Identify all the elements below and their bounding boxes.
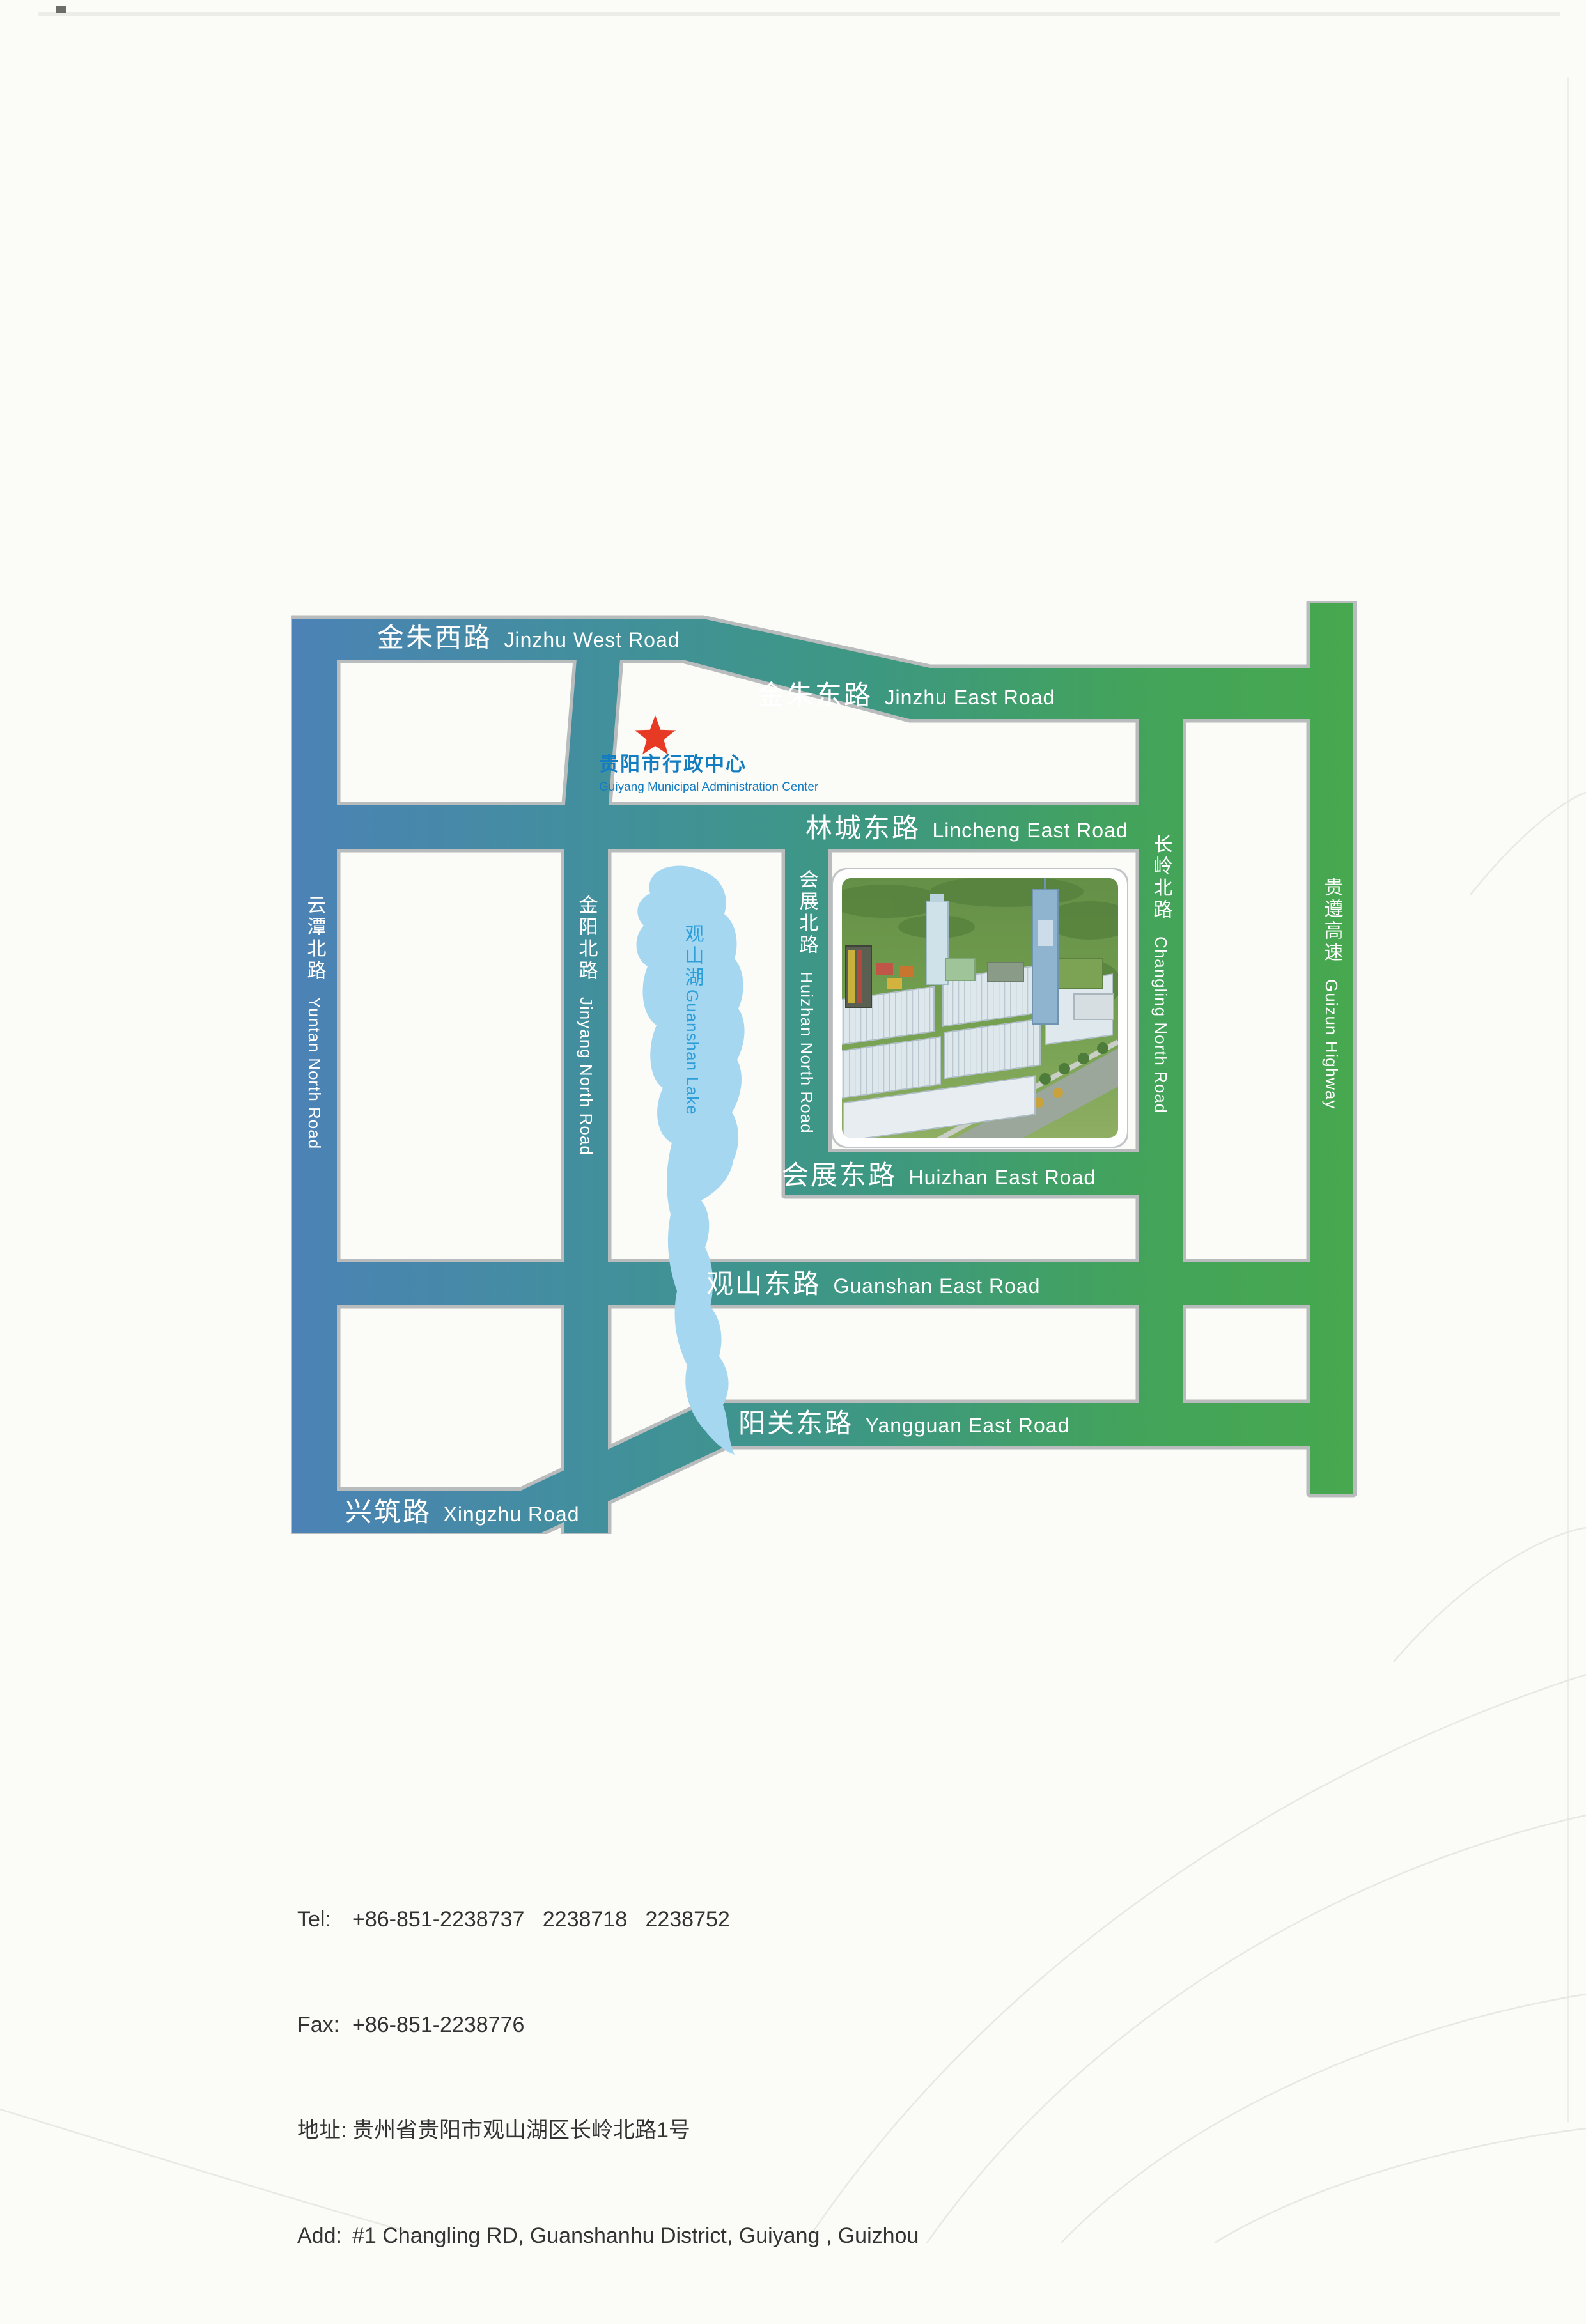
- contact-tel-label: Tel:: [297, 1902, 352, 1937]
- road-label-changling-north-en: Changling North Road: [1151, 936, 1170, 1113]
- road-label-lincheng-east-en: Lincheng East Road: [932, 819, 1128, 842]
- contact-block: Tel:+86-851-2238737 2238718 2238752 Fax:…: [297, 1832, 919, 2324]
- road-label-jinzhu-west-zh: 金朱西路: [377, 623, 492, 653]
- red-star-icon: [635, 715, 676, 755]
- lake-label-en: Guanshan Lake: [683, 989, 702, 1115]
- road-network: [292, 603, 1353, 1533]
- contact-address-en: Add:#1 Changling RD, Guanshanhu District…: [297, 2219, 919, 2254]
- road-label-huizhan-north-en: Huizhan North Road: [797, 972, 816, 1134]
- road-label-jinzhu-east-zh: 金朱东路: [758, 680, 873, 710]
- road-label-xingzhu-zh: 兴筑路: [345, 1497, 431, 1527]
- road-label-huizhan-east-en: Huizhan East Road: [908, 1166, 1096, 1189]
- lake-label-zh: 观山湖: [682, 924, 704, 989]
- scanned-flyer-page: 观山湖 Guanshan Lake: [0, 0, 1586, 2243]
- road-label-huizhan-north-zh: 会展北路: [797, 869, 819, 956]
- contact-fax-label: Fax:: [297, 2008, 352, 2043]
- scan-speck: [56, 6, 66, 13]
- road-label-jinyang-north-en: Jinyang North Road: [577, 997, 596, 1156]
- contact-address-zh: 地址:贵州省贵阳市观山湖区长岭北路1号: [297, 2113, 919, 2148]
- landmark-marker: 贵阳市行政中心 Guiyang Municipal Administration…: [599, 715, 819, 794]
- contact-address-en-label: Add:: [297, 2219, 352, 2254]
- contact-fax-value: +86-851-2238776: [352, 2013, 524, 2037]
- road-label-xingzhu-en: Xingzhu Road: [443, 1503, 579, 1526]
- location-map: 观山湖 Guanshan Lake: [291, 601, 1365, 1534]
- road-label-jinzhu-west-en: Jinzhu West Road: [504, 628, 680, 651]
- road-label-guanshan-east-en: Guanshan East Road: [833, 1274, 1040, 1298]
- road-label-yuntan-north-zh: 云潭北路: [304, 895, 326, 982]
- road-label-changling-north-zh: 长岭北路: [1151, 834, 1172, 921]
- road-label-guanshan-east-zh: 观山东路: [706, 1269, 821, 1299]
- road-label-yangguan-east-zh: 阳关东路: [738, 1408, 853, 1438]
- scan-streak-top: [38, 12, 1560, 16]
- aerial-photo: [828, 869, 1135, 1157]
- contact-tel-value: +86-851-2238737 2238718 2238752: [352, 1907, 730, 1932]
- road-label-lincheng-east-zh: 林城东路: [805, 813, 921, 843]
- road-label-jinyang-north-zh: 金阳北路: [576, 895, 598, 982]
- scan-edge-right: [1567, 77, 1569, 2122]
- contact-address-en-value: #1 Changling RD, Guanshanhu District, Gu…: [352, 2224, 919, 2248]
- road-label-yuntan-north-en: Yuntan North Road: [305, 997, 324, 1149]
- road-label-guizun-highway-en: Guizun Highway: [1322, 979, 1341, 1109]
- contact-address-zh-value: 贵州省贵阳市观山湖区长岭北路1号: [352, 2118, 690, 2142]
- photo-tower-right: [1032, 874, 1058, 1024]
- road-label-huizhan-east-zh: 会展东路: [782, 1160, 897, 1190]
- contact-fax: Fax:+86-851-2238776: [297, 2008, 919, 2043]
- road-label-jinzhu-east-en: Jinzhu East Road: [884, 686, 1055, 709]
- contact-tel: Tel:+86-851-2238737 2238718 2238752: [297, 1902, 919, 1937]
- landmark-label-en: Guiyang Municipal Administration Center: [599, 780, 819, 794]
- road-label-guizun-highway-zh: 贵遵高速: [1321, 877, 1343, 964]
- landmark-label-zh: 贵阳市行政中心: [599, 753, 747, 775]
- contact-address-zh-label: 地址:: [297, 2113, 352, 2148]
- road-label-yangguan-east-en: Yangguan East Road: [865, 1414, 1069, 1437]
